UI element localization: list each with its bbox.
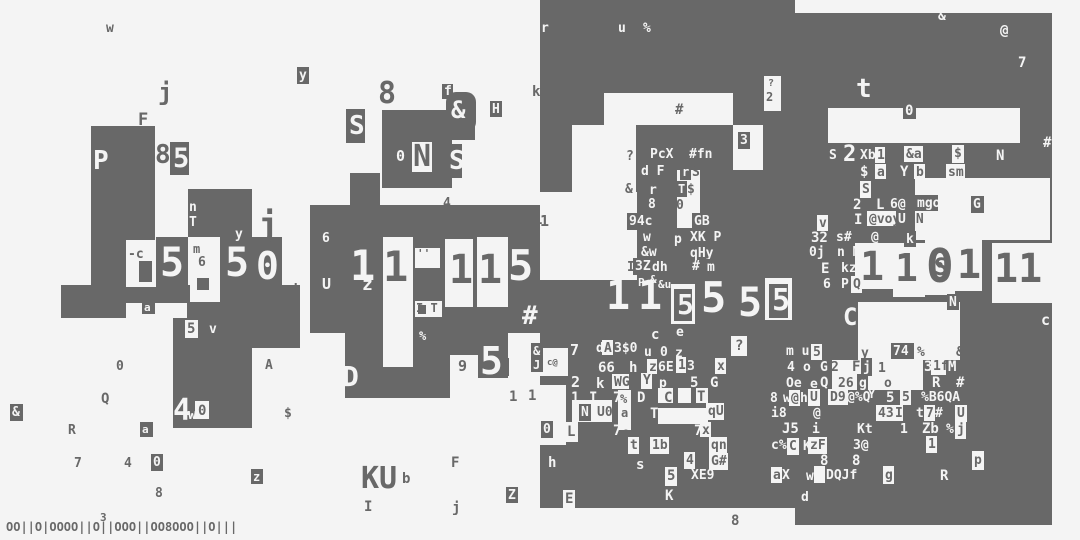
noise-block <box>540 192 637 280</box>
noise-glyph: r <box>649 184 657 197</box>
noise-glyph: 1 <box>860 247 884 287</box>
noise-block <box>126 303 187 318</box>
noise-glyph: N <box>581 406 589 419</box>
noise-glyph: C <box>664 391 672 405</box>
noise-glyph: 2 <box>853 198 861 212</box>
noise-canvas: OO||O|OOOO||O||OOO||OO8OOO||O||| wjFP85y… <box>0 0 1080 540</box>
noise-glyph: a <box>773 469 781 482</box>
noise-glyph: p <box>659 377 667 390</box>
noise-glyph: 1 <box>540 214 549 229</box>
noise-glyph: 5 <box>772 286 790 316</box>
noise-glyph: XE9 <box>691 469 714 482</box>
noise-glyph: J <box>533 359 540 371</box>
noise-glyph: 0 <box>198 404 206 418</box>
noise-glyph: D <box>342 363 359 391</box>
noise-glyph: F <box>138 112 148 129</box>
noise-glyph: 1 <box>449 250 473 290</box>
noise-glyph: 2 <box>831 361 839 374</box>
noise-glyph: H <box>492 103 500 116</box>
noise-glyph: & <box>956 346 964 359</box>
noise-glyph: 0 <box>116 360 124 373</box>
noise-glyph: 5 <box>508 245 533 287</box>
noise-glyph: a <box>877 166 885 179</box>
noise-glyph: E <box>821 262 829 276</box>
noise-glyph: Y <box>643 374 651 387</box>
noise-glyph: d <box>801 491 809 504</box>
noise-glyph: T <box>189 216 197 229</box>
noise-glyph: PcX <box>650 148 673 161</box>
noise-glyph: r <box>682 166 689 178</box>
noise-glyph: 0 <box>905 104 913 118</box>
noise-glyph: 7 <box>1018 56 1026 70</box>
noise-glyph: WG <box>614 376 630 389</box>
noise-glyph: ? <box>735 339 743 353</box>
noise-glyph: & <box>938 10 946 23</box>
noise-glyph: x <box>717 360 725 373</box>
noise-glyph: 3@ <box>853 439 869 452</box>
noise-glyph: S <box>349 113 365 139</box>
noise-glyph: # <box>1043 136 1051 150</box>
noise-glyph: k <box>532 85 540 99</box>
noise-glyph: % <box>946 423 954 436</box>
noise-glyph: 0 <box>396 149 405 164</box>
noise-glyph: 6E <box>658 361 674 374</box>
noise-glyph: % <box>917 346 925 359</box>
noise-glyph: @ <box>791 392 799 405</box>
noise-glyph: 1f <box>933 360 949 373</box>
noise-glyph: G <box>820 361 828 374</box>
noise-glyph: 8 <box>648 198 656 211</box>
noise-glyph: 1 <box>509 390 517 404</box>
noise-glyph: t <box>630 439 638 452</box>
noise-glyph: t <box>856 76 872 102</box>
noise-glyph: R <box>940 469 948 483</box>
noise-glyph: 5 <box>677 291 694 319</box>
noise-glyph: $ <box>860 165 868 179</box>
noise-glyph: ? <box>626 150 634 163</box>
noise-glyph: 6 <box>823 278 831 291</box>
noise-glyph: 1 <box>895 249 918 287</box>
noise-glyph: 0j <box>809 246 825 259</box>
noise-glyph: & <box>625 183 633 196</box>
noise-glyph: # <box>675 103 683 117</box>
noise-glyph: 5 <box>173 145 189 172</box>
noise-glyph: S <box>449 148 465 174</box>
noise-glyph: A <box>604 342 612 355</box>
noise-glyph: I <box>364 500 372 514</box>
noise-glyph: 4 <box>787 361 795 374</box>
noise-glyph: 5 <box>701 277 726 319</box>
noise-glyph: 6 <box>322 232 330 245</box>
noise-glyph: & <box>451 98 465 122</box>
noise-glyph: 8 <box>155 142 171 168</box>
noise-glyph: Z <box>508 489 516 502</box>
noise-glyph: Kt <box>857 423 873 436</box>
noise-glyph: Zb <box>922 422 939 436</box>
noise-glyph: S <box>692 166 700 179</box>
noise-glyph: 1 <box>571 391 579 405</box>
noise-glyph: j <box>258 208 278 242</box>
noise-glyph: w <box>806 470 814 483</box>
noise-glyph: zF <box>810 439 826 452</box>
noise-glyph: 1 <box>928 438 936 451</box>
noise-glyph: # <box>935 407 943 420</box>
noise-glyph: F <box>451 456 459 470</box>
noise-glyph: p <box>674 233 682 246</box>
noise-glyph: 5 <box>886 391 894 405</box>
noise-glyph: 7 <box>613 424 621 438</box>
noise-glyph: 0 <box>676 199 684 212</box>
noise-glyph: 7 <box>570 343 579 358</box>
noise-glyph: N <box>996 149 1004 163</box>
noise-glyph: d F <box>641 165 664 178</box>
noise-glyph: X <box>782 469 790 482</box>
noise-glyph: 7 <box>74 457 82 470</box>
noise-glyph: 0 <box>543 423 551 436</box>
noise-glyph: M <box>948 360 956 374</box>
noise-glyph: a <box>144 302 151 313</box>
noise-glyph: @%Q <box>847 391 870 404</box>
noise-block <box>197 278 209 290</box>
noise-glyph: c <box>651 328 659 342</box>
noise-glyph: 3 <box>740 134 748 147</box>
noise-glyph: 5 <box>690 376 698 390</box>
noise-glyph: S <box>862 183 870 196</box>
noise-glyph: % <box>620 393 627 405</box>
noise-glyph: Oe <box>786 377 802 390</box>
noise-glyph: 1 <box>878 362 886 375</box>
noise-glyph: I <box>895 407 903 420</box>
noise-glyph: h <box>800 392 808 405</box>
noise-glyph: c% <box>771 439 787 452</box>
noise-glyph: 6@ <box>890 198 906 211</box>
noise-glyph: u <box>644 346 652 359</box>
noise-glyph: c@ <box>547 359 558 368</box>
noise-glyph: qn <box>711 439 727 452</box>
noise-glyph: $ <box>687 183 695 196</box>
noise-glyph: o <box>884 377 892 390</box>
noise-block <box>604 93 733 125</box>
noise-glyph: F <box>852 360 860 374</box>
noise-glyph: w <box>188 408 196 422</box>
noise-glyph: 1 <box>528 389 536 403</box>
noise-glyph: '' <box>417 248 430 259</box>
noise-glyph: @ <box>813 407 821 420</box>
noise-glyph: t <box>916 407 924 420</box>
noise-glyph: KU <box>361 464 397 494</box>
noise-glyph: 4 <box>443 197 451 210</box>
noise-glyph: U <box>957 407 965 420</box>
noise-glyph: XK P <box>690 231 721 244</box>
noise-block <box>350 173 380 205</box>
noise-glyph: 0 <box>153 456 161 469</box>
noise-glyph: r <box>541 22 549 35</box>
noise-glyph: a <box>621 407 628 419</box>
noise-glyph: 94c <box>629 215 652 228</box>
noise-glyph: C <box>843 305 857 329</box>
noise-glyph: 1 <box>606 276 630 316</box>
barcode-strip: OO||O|OOOO||O||OOO||OO8OOO||O||| <box>6 520 237 534</box>
noise-glyph: s# <box>836 231 852 244</box>
noise-glyph: C <box>789 440 797 453</box>
noise-glyph: 6 <box>198 256 206 269</box>
noise-block <box>828 108 1020 143</box>
noise-glyph: z <box>253 471 260 483</box>
noise-glyph: k <box>906 233 914 246</box>
noise-glyph: R <box>68 424 76 437</box>
noise-glyph: 5 <box>667 469 675 483</box>
noise-block <box>139 261 152 282</box>
noise-glyph: 5 <box>402 166 411 181</box>
noise-glyph: 11 <box>994 249 1042 289</box>
noise-glyph: 0 <box>256 247 279 285</box>
noise-glyph: $ <box>954 147 962 160</box>
noise-glyph: m <box>193 243 200 255</box>
noise-glyph: T <box>678 183 685 195</box>
noise-glyph: I <box>589 391 597 405</box>
noise-glyph: J5 <box>782 422 799 436</box>
noise-glyph: g <box>859 377 867 390</box>
noise-glyph: 3Z <box>635 260 651 273</box>
noise-glyph: 8 <box>731 514 739 528</box>
noise-glyph: #fn <box>689 148 712 161</box>
noise-glyph: i8 <box>771 407 787 420</box>
noise-glyph: 8 <box>378 79 396 109</box>
noise-glyph: o <box>803 361 811 374</box>
noise-glyph: a <box>142 424 149 435</box>
noise-glyph: # <box>692 260 700 273</box>
noise-glyph: kz <box>841 262 857 275</box>
noise-glyph: @ <box>871 231 879 244</box>
noise-glyph: 8 <box>155 487 163 500</box>
noise-glyph: S <box>934 255 948 279</box>
noise-glyph: 5 <box>902 391 910 404</box>
noise-glyph: x <box>702 424 710 437</box>
noise-glyph: %B6QA <box>921 391 960 404</box>
noise-glyph: E <box>565 492 573 506</box>
noise-glyph: U <box>810 391 818 404</box>
noise-glyph: 1 <box>94 246 119 288</box>
noise-glyph: 5 <box>160 243 184 283</box>
noise-glyph: A <box>265 359 273 372</box>
noise-glyph: g <box>885 469 893 482</box>
noise-glyph: N <box>413 142 431 172</box>
noise-glyph: 5 <box>187 322 195 336</box>
noise-glyph: qU <box>708 405 724 418</box>
noise-glyph: G <box>710 376 718 390</box>
noise-glyph: 1 <box>383 246 408 288</box>
noise-glyph: 2 <box>571 375 580 390</box>
noise-glyph: U0 <box>597 406 613 419</box>
noise-glyph: -c <box>128 248 144 261</box>
noise-glyph: c <box>1041 313 1050 328</box>
noise-glyph: 1 <box>877 149 885 162</box>
noise-glyph: :N <box>908 213 924 226</box>
noise-glyph: % <box>419 330 426 342</box>
noise-glyph: T <box>650 407 658 421</box>
noise-glyph: ? <box>768 79 774 89</box>
noise-glyph: I <box>854 213 862 227</box>
noise-glyph: 3 <box>100 512 107 523</box>
noise-glyph: m u <box>786 345 809 358</box>
noise-glyph: & <box>533 345 540 357</box>
noise-glyph: 7 <box>926 407 934 420</box>
noise-glyph: Xb <box>860 149 876 162</box>
noise-glyph: h <box>548 456 556 470</box>
noise-glyph: DQJf <box>826 469 857 482</box>
noise-glyph: Y <box>900 165 908 179</box>
noise-glyph: h <box>629 361 637 375</box>
glyph-chip <box>814 466 825 483</box>
noise-glyph: 1 <box>957 245 981 285</box>
noise-glyph: mgo <box>917 197 940 210</box>
noise-glyph: v <box>819 217 827 230</box>
noise-glyph: 3$0 <box>614 342 637 355</box>
noise-glyph: D9 <box>830 391 846 404</box>
noise-glyph: &a <box>906 148 922 161</box>
noise-glyph: 3 <box>687 360 695 373</box>
noise-glyph: 9 <box>458 359 467 374</box>
noise-glyph: j <box>957 423 965 436</box>
noise-glyph: 2 <box>766 91 773 103</box>
noise-glyph: 32 <box>811 231 828 245</box>
noise-glyph: j <box>452 501 460 515</box>
noise-glyph: Y <box>868 388 875 400</box>
noise-glyph: 1 <box>900 423 908 436</box>
noise-glyph: 5 <box>738 283 762 323</box>
noise-glyph: T <box>697 390 705 404</box>
noise-glyph: # <box>956 376 964 390</box>
noise-glyph: 2 <box>843 144 856 166</box>
noise-glyph: p <box>974 454 982 467</box>
noise-glyph: GB <box>694 215 710 228</box>
noise-glyph: 1b <box>652 439 668 452</box>
noise-glyph: G <box>973 198 981 211</box>
noise-glyph: 5 <box>480 342 503 380</box>
noise-glyph: u <box>618 22 626 35</box>
noise-glyph: 5 <box>225 243 249 283</box>
noise-glyph: % <box>643 22 651 35</box>
noise-glyph: 8 <box>770 392 778 405</box>
noise-glyph: 1 <box>678 359 686 372</box>
noise-glyph: t <box>292 282 300 296</box>
noise-glyph: R <box>932 376 940 390</box>
noise-glyph: v <box>209 323 217 336</box>
noise-block <box>418 277 426 286</box>
noise-glyph: z <box>362 276 373 294</box>
noise-glyph: 43 <box>878 407 894 420</box>
noise-glyph: i <box>812 423 820 436</box>
noise-glyph: s <box>636 458 644 472</box>
noise-glyph: Q <box>820 376 828 390</box>
noise-glyph: b <box>916 166 924 179</box>
noise-glyph: U <box>898 213 906 226</box>
noise-glyph: w <box>106 22 114 35</box>
noise-glyph: Q <box>101 392 109 406</box>
noise-glyph: b <box>402 472 410 486</box>
noise-glyph: @ <box>1000 24 1008 38</box>
noise-glyph: U <box>322 277 331 292</box>
noise-glyph: 0 <box>660 346 668 359</box>
noise-glyph: 4 <box>686 454 694 467</box>
noise-glyph: y <box>299 69 307 82</box>
noise-glyph: 4 <box>124 457 132 470</box>
noise-glyph: P <box>841 278 849 291</box>
noise-glyph: K <box>665 489 673 503</box>
noise-glyph: S <box>829 149 837 162</box>
noise-glyph: G# <box>711 455 727 468</box>
noise-glyph: L <box>876 198 884 212</box>
noise-glyph: D <box>637 391 645 405</box>
noise-glyph: e <box>676 326 684 339</box>
noise-glyph: 66 <box>598 361 615 375</box>
noise-glyph: 74 <box>893 345 909 358</box>
noise-glyph: L <box>567 425 575 439</box>
noise-glyph: # <box>522 303 538 329</box>
noise-glyph: 8 <box>852 454 860 468</box>
noise-glyph: I T <box>416 302 438 314</box>
noise-glyph: $ <box>284 407 292 420</box>
noise-glyph: 1 <box>478 250 502 290</box>
noise-glyph: k <box>596 377 604 391</box>
noise-glyph: N <box>949 296 957 309</box>
noise-block <box>673 388 678 403</box>
noise-glyph: j <box>863 361 871 374</box>
noise-glyph: sm <box>948 166 964 179</box>
noise-glyph: P <box>93 148 109 174</box>
noise-glyph: j <box>158 80 172 104</box>
noise-glyph: 5 <box>813 346 821 359</box>
noise-glyph: & <box>12 406 20 419</box>
noise-glyph: 1 <box>638 276 662 316</box>
noise-glyph: n <box>189 201 197 214</box>
noise-glyph: w <box>643 231 651 244</box>
